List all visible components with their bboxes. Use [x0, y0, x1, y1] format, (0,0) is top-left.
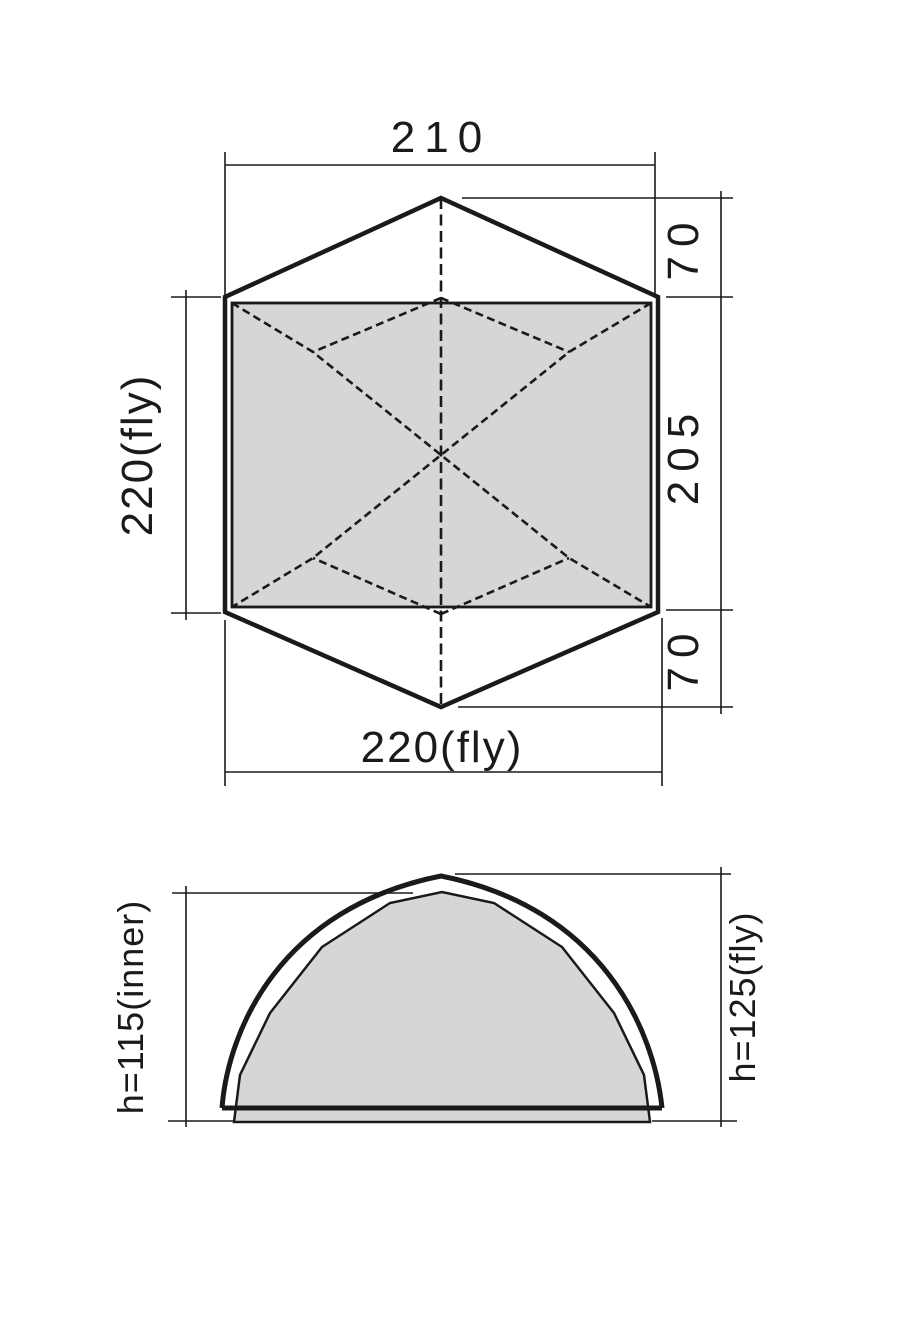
dim-label-70-top: 70: [659, 214, 708, 281]
dim-label-205: 205: [659, 405, 708, 505]
dim-label-210: 210: [391, 113, 491, 162]
dim-label-h125: h=125(fly): [722, 911, 763, 1082]
dim-label-220-left: 220(fly): [113, 374, 162, 537]
inner-tent-profile: [234, 892, 650, 1122]
side-view: h=115(inner) h=125(fly): [110, 867, 763, 1127]
dim-label-h115: h=115(inner): [110, 900, 151, 1114]
dim-label-70-bottom: 70: [659, 625, 708, 692]
dim-label-220-bottom: 220(fly): [361, 723, 524, 772]
top-view: 210 220(fly) 70 205 70 220(fly): [113, 113, 733, 786]
diagram-canvas: 210 220(fly) 70 205 70 220(fly): [0, 0, 900, 1318]
tent-dimension-diagram: 210 220(fly) 70 205 70 220(fly): [0, 0, 900, 1318]
